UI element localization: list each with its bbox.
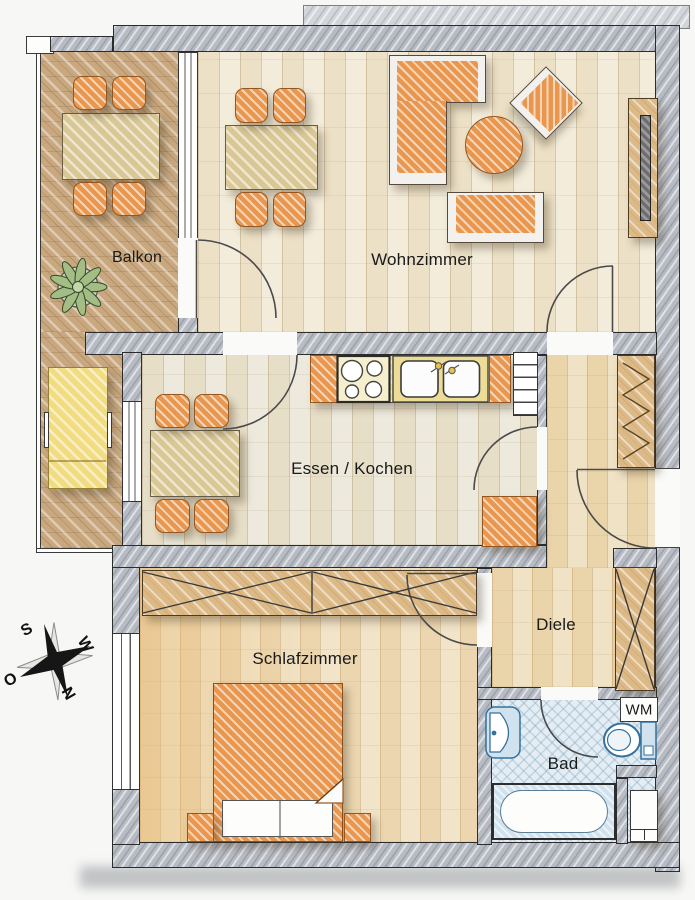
livingroom-chair — [273, 192, 306, 227]
balcony-table — [62, 113, 160, 180]
bathroom-door-opening — [541, 687, 598, 700]
kitchen-chair — [194, 499, 229, 533]
room-label-wohnzimmer: Wohnzimmer — [371, 250, 473, 270]
loveseat — [447, 192, 544, 243]
balcony-chair — [73, 182, 107, 216]
livingroom-chair — [235, 88, 268, 123]
sun-lounger — [48, 367, 108, 489]
bathtub — [492, 783, 616, 840]
compass-west: W — [74, 634, 97, 656]
balcony-chair — [112, 76, 146, 110]
kitchen-counter-cabinet — [310, 355, 338, 403]
nightstand — [187, 813, 214, 842]
balcony-railing-left — [36, 38, 41, 552]
washing-machine-niche: WM — [620, 697, 658, 722]
balcony-railing-bottom — [36, 548, 124, 553]
tv-sideboard — [628, 98, 658, 238]
livingroom-hallway-door-opening — [547, 332, 613, 355]
entrance-door-opening — [655, 468, 680, 548]
compass-south: S — [18, 620, 36, 640]
floor-plan: WM — [0, 0, 695, 900]
sun-lounger-fold-line — [49, 460, 106, 462]
wall-bottom — [112, 842, 680, 868]
wall-entry-stub — [613, 548, 657, 568]
compass-needle-ns — [44, 624, 68, 698]
wall-top — [113, 25, 680, 52]
wall-right — [655, 25, 680, 872]
room-label-bad: Bad — [548, 754, 579, 774]
kitchen-shelf — [513, 352, 538, 416]
nightstand — [344, 813, 371, 842]
washing-machine-panel-divider — [644, 829, 645, 840]
kitchen-chair — [194, 394, 229, 428]
room-label-essen-kochen: Essen / Kochen — [291, 459, 413, 479]
livingroom-chair — [273, 88, 306, 123]
loveseat-seat — [456, 195, 535, 233]
wall-wm-nook-vertical — [616, 778, 628, 844]
livingroom-chair — [235, 192, 268, 227]
kitchen-dining-table — [150, 430, 240, 497]
compass-north: N — [58, 684, 79, 703]
kitchen-counter — [310, 355, 511, 403]
room-label-diele: Diele — [536, 615, 576, 635]
bed — [213, 683, 343, 842]
tv-screen — [640, 115, 651, 221]
wall-top-balcony — [50, 36, 113, 52]
sun-lounger-armrest — [44, 412, 49, 448]
kitchen-hallway-door-opening — [537, 427, 547, 490]
bedroom-wardrobe — [142, 570, 477, 616]
corner-sofa-seat — [397, 61, 478, 102]
kitchen-chair — [155, 499, 190, 533]
kitchen-chair — [155, 394, 190, 428]
sun-lounger-armrest — [107, 412, 112, 448]
coffee-table — [465, 116, 523, 174]
bottom-drop-shadow — [80, 866, 680, 888]
livingroom-dining-table — [225, 125, 318, 190]
corner-sofa-vertical — [389, 101, 447, 185]
room-label-schlafzimmer: Schlafzimmer — [252, 649, 357, 669]
washing-machine-label: WM — [625, 701, 652, 718]
bedroom-door-opening — [477, 573, 492, 647]
balcony-floor-upper — [41, 42, 178, 332]
wall-wm-nook-horizontal — [616, 765, 657, 778]
balcony-door-opening — [178, 238, 198, 318]
compass-rose: S W O N — [1, 616, 98, 706]
room-label-balkon: Balkon — [112, 249, 162, 267]
corner-sofa-horizontal — [389, 55, 486, 103]
coat-rack — [617, 355, 655, 468]
kitchen-balcony-window — [122, 401, 142, 502]
bed-pillow-area — [222, 800, 333, 837]
corner-sofa-seat — [397, 101, 446, 173]
balcony-chair — [112, 182, 146, 216]
bathtub-basin — [500, 790, 608, 833]
livingroom-balcony-window — [178, 52, 198, 240]
washing-machine — [630, 790, 658, 842]
kitchen-cabinet — [482, 496, 537, 547]
wall-kitchen-bottom — [112, 545, 547, 568]
hallway-wardrobe — [615, 567, 655, 691]
compass-needle-we — [20, 646, 90, 677]
kitchen-counter-cabinet — [489, 355, 511, 403]
bedroom-window — [112, 633, 140, 790]
balcony-chair — [73, 76, 107, 110]
compass-east: O — [1, 670, 20, 691]
kitchen-door-opening — [223, 332, 297, 355]
